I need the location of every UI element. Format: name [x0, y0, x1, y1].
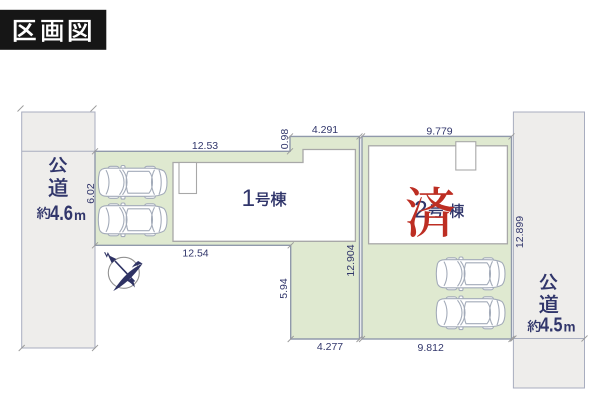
svg-text:4.6: 4.6: [50, 202, 73, 225]
svg-text:1: 1: [242, 185, 256, 212]
svg-text:6.02: 6.02: [85, 183, 97, 204]
svg-text:m: m: [74, 208, 86, 223]
svg-text:12.899: 12.899: [514, 216, 526, 248]
svg-text:4.291: 4.291: [312, 124, 338, 136]
svg-text:9.812: 9.812: [418, 342, 444, 354]
svg-text:0.98: 0.98: [279, 129, 291, 150]
svg-text:4.5: 4.5: [540, 315, 563, 337]
svg-text:5.94: 5.94: [278, 278, 290, 299]
svg-text:4.277: 4.277: [317, 341, 343, 353]
svg-text:12.53: 12.53: [192, 140, 218, 152]
svg-text:m: m: [564, 320, 576, 335]
svg-text:9.779: 9.779: [426, 126, 452, 138]
svg-text:12.904: 12.904: [345, 244, 357, 276]
svg-text:12.54: 12.54: [182, 248, 208, 260]
